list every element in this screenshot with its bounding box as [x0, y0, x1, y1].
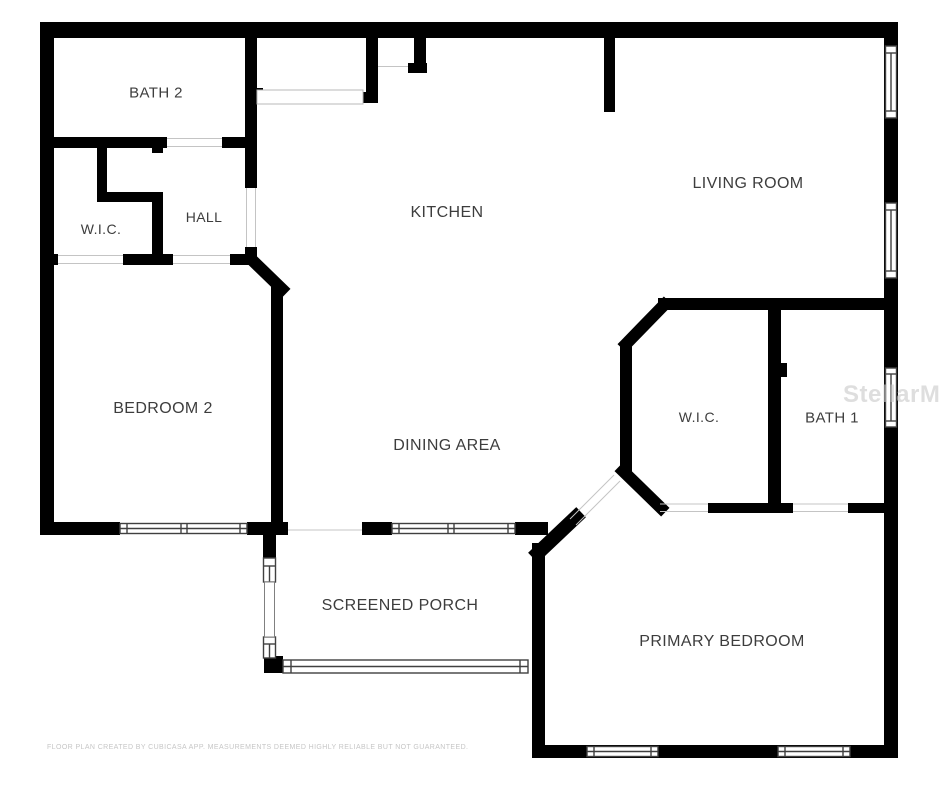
window-primary-2: [778, 747, 850, 757]
wall-bedroom2-east: [271, 285, 283, 535]
wall-kitchen-living: [604, 38, 615, 112]
floor-plan: BATH 2 W.I.C. HALL KITCHEN LIVING ROOM B…: [0, 0, 940, 788]
wall-primary-west: [532, 543, 545, 758]
window-primary-1: [587, 747, 658, 757]
window-porch-left-1: [264, 558, 276, 582]
diagonal-walls: [250, 258, 664, 553]
room-label-bath-2: BATH 2: [129, 85, 183, 102]
room-label-kitchen: KITCHEN: [410, 204, 483, 222]
cubicasa-disclaimer: FLOOR PLAN CREATED BY CUBICASA APP. MEAS…: [47, 744, 468, 751]
window-dining: [392, 524, 515, 534]
stellar-mls-watermark: StellarMLS: [843, 381, 940, 409]
room-label-wic-primary: W.I.C.: [679, 409, 720, 425]
room-label-living-room: LIVING ROOM: [692, 175, 803, 193]
room-label-bedroom-2: BEDROOM 2: [113, 400, 213, 418]
window-bedroom2: [120, 524, 247, 534]
room-label-bath-1: BATH 1: [805, 410, 859, 427]
room-label-wic-bedroom2: W.I.C.: [81, 221, 122, 237]
room-label-primary-bedroom: PRIMARY BEDROOM: [639, 633, 804, 651]
room-label-hall: HALL: [186, 209, 223, 225]
window-living-1: [886, 46, 897, 118]
window-porch-left-2: [264, 637, 276, 658]
kitchen-counter: [257, 90, 363, 104]
window-porch-bottom: [283, 660, 528, 673]
window-living-2: [886, 203, 897, 278]
wall-left: [40, 22, 54, 535]
wall-top: [40, 22, 898, 38]
room-label-screened-porch: SCREENED PORCH: [322, 597, 479, 615]
floorplan-geometry: [0, 0, 940, 788]
porch-screen-wall: [265, 582, 275, 637]
room-label-dining-area: DINING AREA: [393, 437, 501, 455]
wall-wic2-bath1: [768, 310, 781, 507]
wall-wic2-top: [658, 298, 884, 310]
